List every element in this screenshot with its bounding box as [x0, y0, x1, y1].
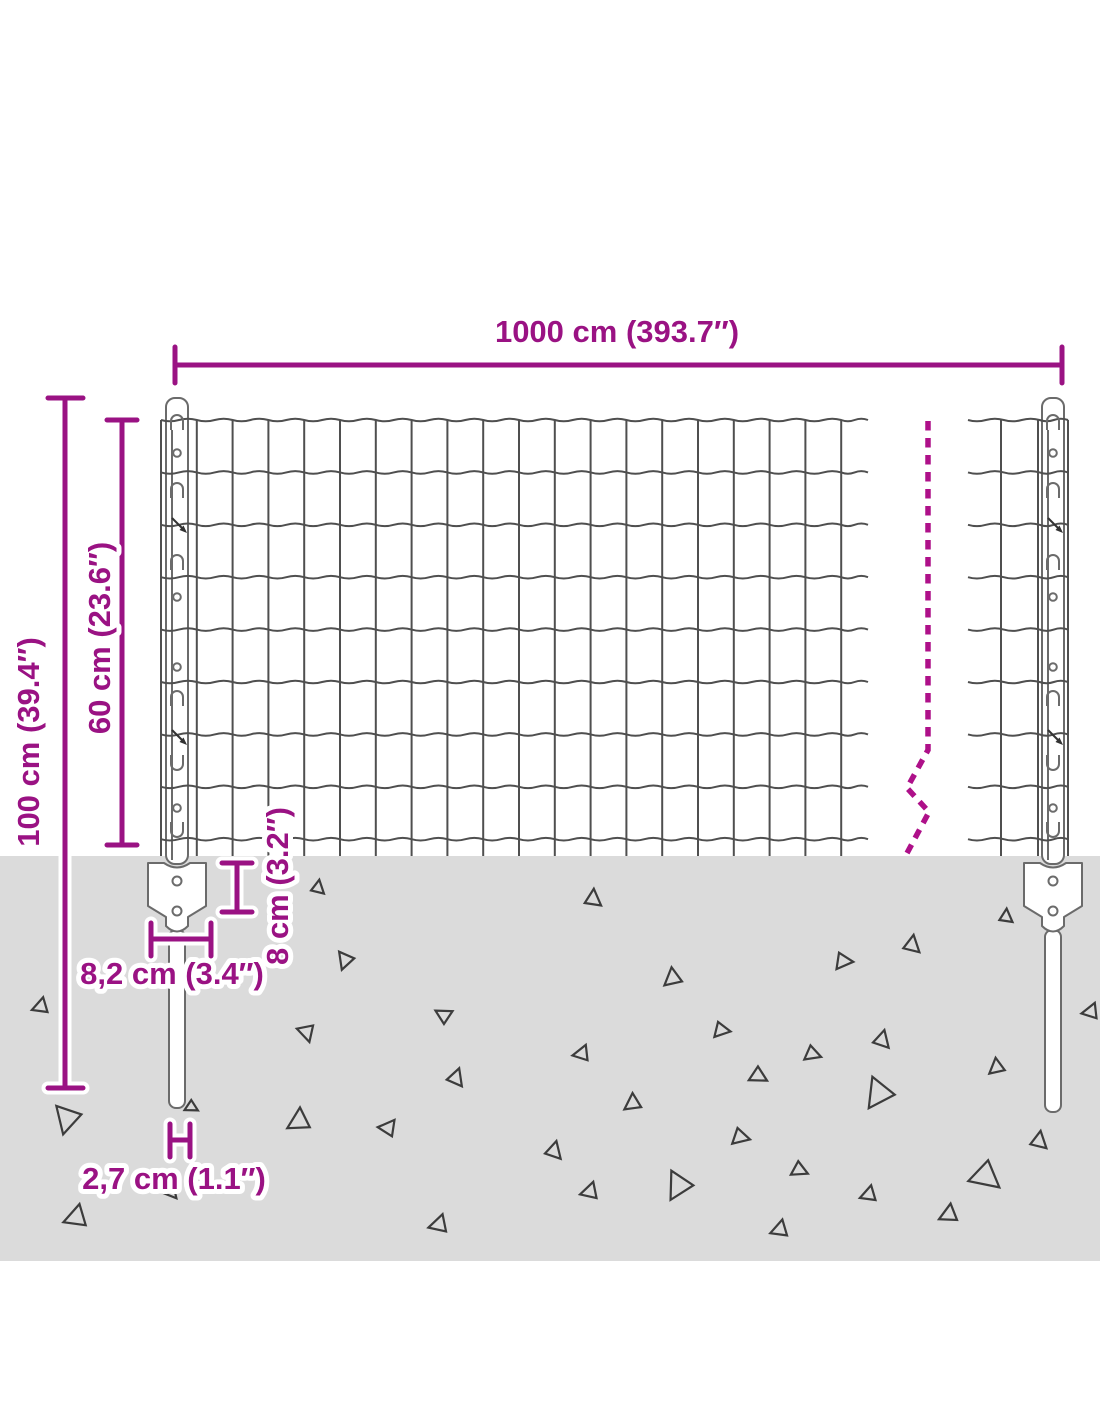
anchor-hole: [173, 877, 182, 886]
mesh-wire: [161, 419, 868, 422]
post-hole: [1049, 593, 1057, 601]
dimension-fence-length: 1000 cm (393.7″): [175, 314, 1062, 383]
post-hole: [173, 449, 181, 457]
dimension-mesh-height: 60 cm (23.6″): [82, 420, 137, 845]
anchor-hole: [1049, 907, 1058, 916]
post-hole: [1049, 663, 1057, 671]
break-line: [906, 421, 929, 855]
fence-dimension-diagram: 1000 cm (393.7″) 100 cm (39.4″) 60 cm (2…: [0, 0, 1100, 1422]
mesh-wire: [161, 628, 868, 631]
anchor-width-label: 8,2 cm (3.4″): [80, 956, 264, 991]
anchor-depth-label: 8 cm (3.2″): [260, 807, 295, 965]
mesh-wire: [161, 681, 868, 684]
right-post-spike: [1045, 930, 1061, 1112]
post-hole: [173, 663, 181, 671]
mesh-wire: [161, 576, 868, 579]
fence-mesh: [161, 419, 1068, 856]
mesh-wire: [161, 471, 868, 474]
mesh-height-label: 60 cm (23.6″): [82, 542, 117, 734]
anchor-hole: [1049, 877, 1058, 886]
post-hole: [1049, 804, 1057, 812]
mesh-wire: [161, 786, 868, 789]
post-hole: [173, 593, 181, 601]
post-hole: [1049, 449, 1057, 457]
anchor-hole: [173, 907, 182, 916]
mesh-wire: [161, 524, 868, 527]
post-width-label: 2,7 cm (1.1″): [82, 1161, 266, 1196]
mesh-wire: [161, 733, 868, 736]
fence-length-label: 1000 cm (393.7″): [495, 314, 739, 349]
post-hole: [173, 804, 181, 812]
total-height-label: 100 cm (39.4″): [11, 637, 46, 847]
